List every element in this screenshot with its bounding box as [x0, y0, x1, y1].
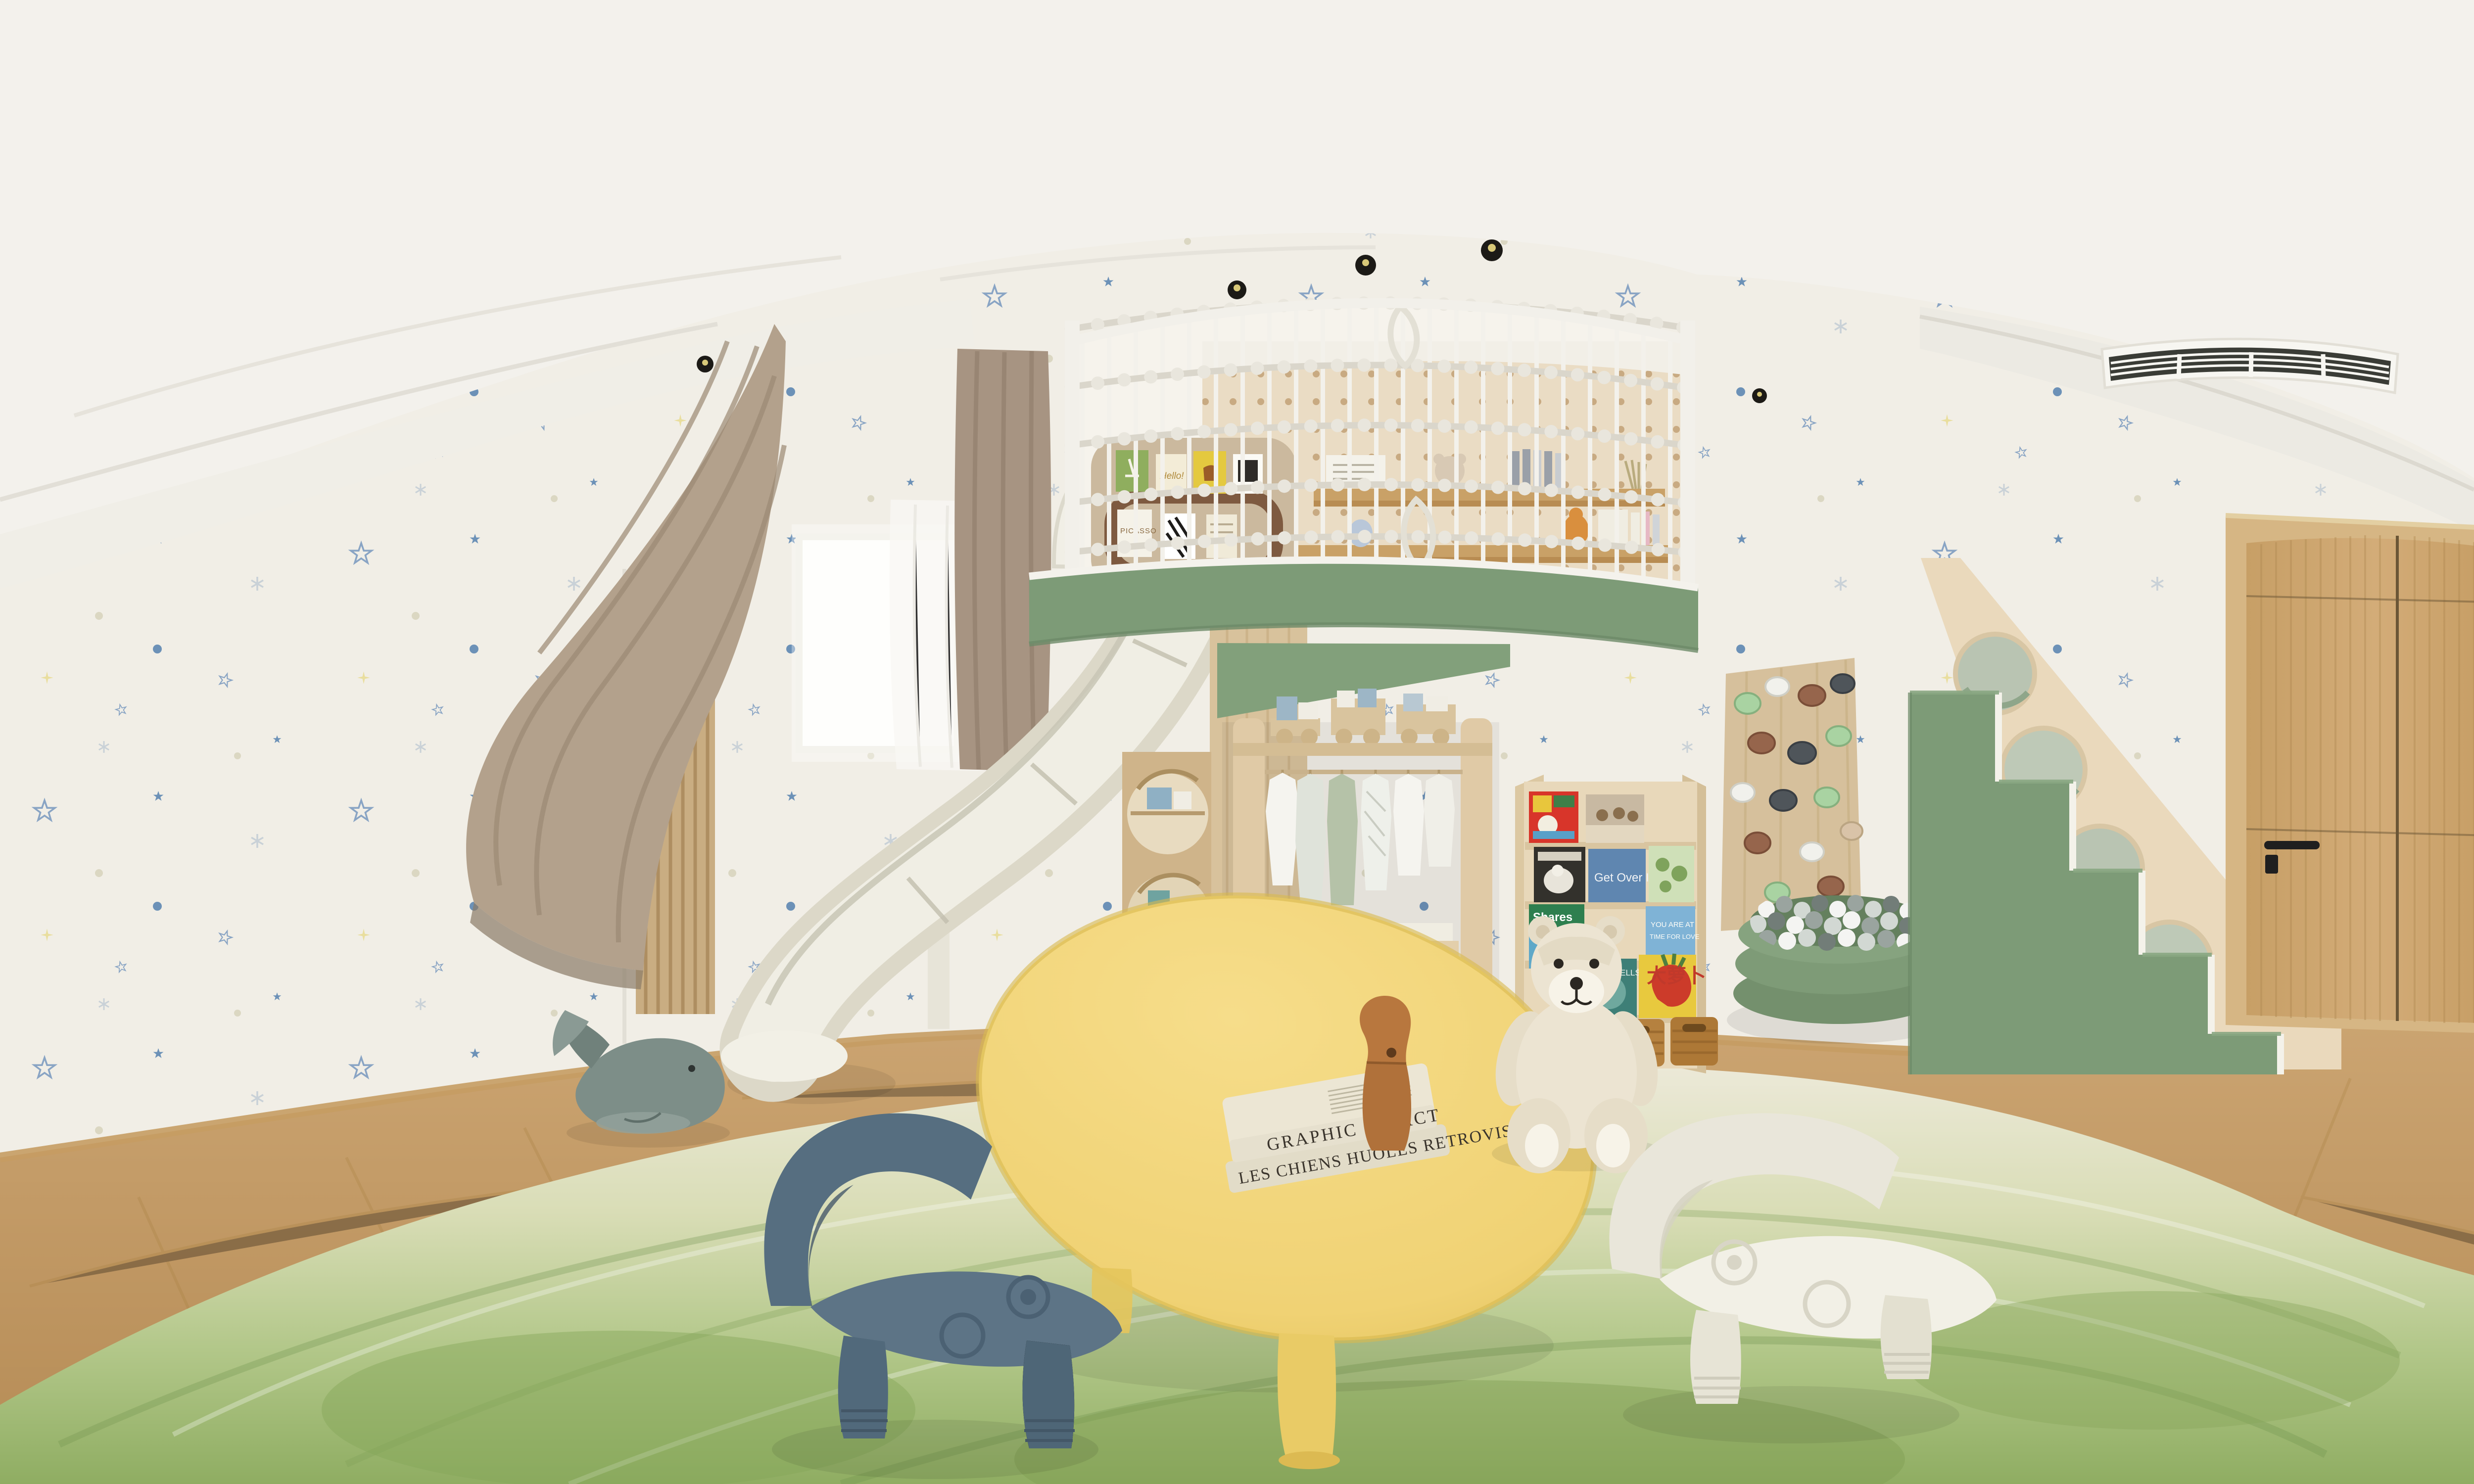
slide-runout	[721, 1030, 848, 1082]
table-leg	[1278, 1333, 1336, 1460]
sage-romper	[1327, 774, 1358, 905]
hanging-rod	[1265, 770, 1463, 774]
book-radish-title: 大萝卜	[1647, 965, 1706, 987]
toy-in-cubby	[1147, 788, 1172, 809]
book-love-line2: TIME FOR LOVE	[1650, 933, 1700, 940]
wood-sculpture	[1360, 996, 1411, 1151]
spotlight	[1752, 388, 1767, 403]
spotlight	[1481, 239, 1503, 261]
book-get-over-it-title: Get Over It	[1594, 871, 1653, 884]
climbing-wall	[1721, 658, 1862, 931]
spotlight	[697, 356, 714, 372]
door-oak	[2226, 515, 2474, 1035]
panorama-playroom: Hello! PICASSO	[0, 0, 2474, 1484]
spotlight	[1228, 280, 1246, 299]
spotlight	[1355, 255, 1376, 276]
book-love-line1: YOU ARE AT	[1651, 921, 1694, 929]
curtain-right	[954, 349, 1051, 772]
